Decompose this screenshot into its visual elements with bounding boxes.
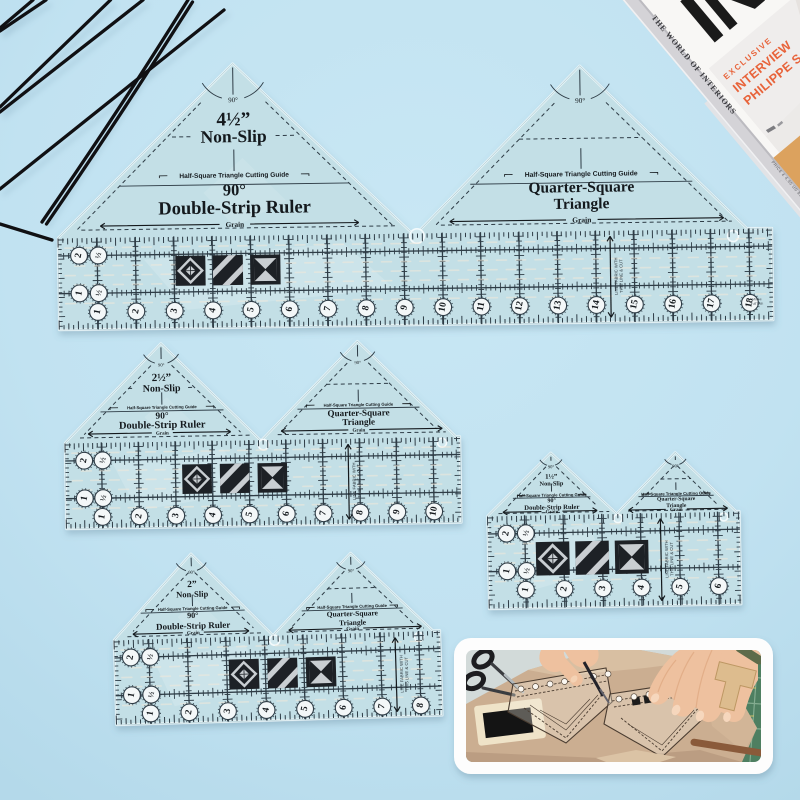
svg-text:90°: 90° — [354, 360, 361, 365]
svg-text:Non-Slip: Non-Slip — [176, 589, 209, 600]
svg-text:90°: 90° — [228, 97, 238, 104]
svg-text:90°: 90° — [187, 611, 199, 620]
svg-text:Grain: Grain — [572, 215, 592, 224]
svg-text:Grain: Grain — [546, 510, 559, 515]
svg-text:Grain: Grain — [352, 428, 365, 433]
svg-text:Quarter-Square: Quarter-Square — [657, 496, 696, 503]
svg-text:Grain: Grain — [187, 631, 200, 636]
svg-text:Grain: Grain — [225, 221, 244, 229]
svg-text:Triangle: Triangle — [342, 417, 375, 428]
svg-text:90°: 90° — [223, 180, 246, 199]
svg-text:90°: 90° — [348, 568, 355, 573]
svg-text:Non-Slip: Non-Slip — [143, 383, 181, 395]
svg-text:Grain: Grain — [346, 627, 359, 632]
svg-text:Non-Slip: Non-Slip — [200, 126, 267, 147]
svg-text:THIS LINE & CUT: THIS LINE & CUT — [669, 542, 675, 576]
svg-text:Double-Strip Ruler: Double-Strip Ruler — [119, 419, 206, 431]
svg-text:Triangle: Triangle — [339, 618, 367, 628]
svg-text:Quarter-Square: Quarter-Square — [528, 178, 634, 196]
svg-text:Non-Slip: Non-Slip — [539, 480, 563, 487]
svg-text:Grain: Grain — [156, 431, 169, 436]
svg-text:Double-Strip Ruler: Double-Strip Ruler — [158, 197, 311, 219]
svg-text:THIS LINE & CUT: THIS LINE & CUT — [618, 259, 623, 293]
svg-text:Mad e: Mad e — [752, 297, 762, 301]
svg-text:90°: 90° — [548, 464, 555, 469]
svg-text:Grain: Grain — [670, 508, 683, 513]
svg-text:90°: 90° — [547, 497, 556, 504]
svg-text:90°: 90° — [158, 362, 165, 367]
svg-text:90°: 90° — [575, 97, 585, 105]
svg-text:THIS LINE & CUT: THIS LINE & CUT — [404, 656, 410, 690]
svg-text:Triangle: Triangle — [554, 195, 610, 213]
svg-text:FullTech: FullTech — [751, 302, 764, 306]
svg-text:THIS LINE & CUT: THIS LINE & CUT — [356, 464, 362, 498]
svg-text:90°: 90° — [188, 570, 195, 575]
